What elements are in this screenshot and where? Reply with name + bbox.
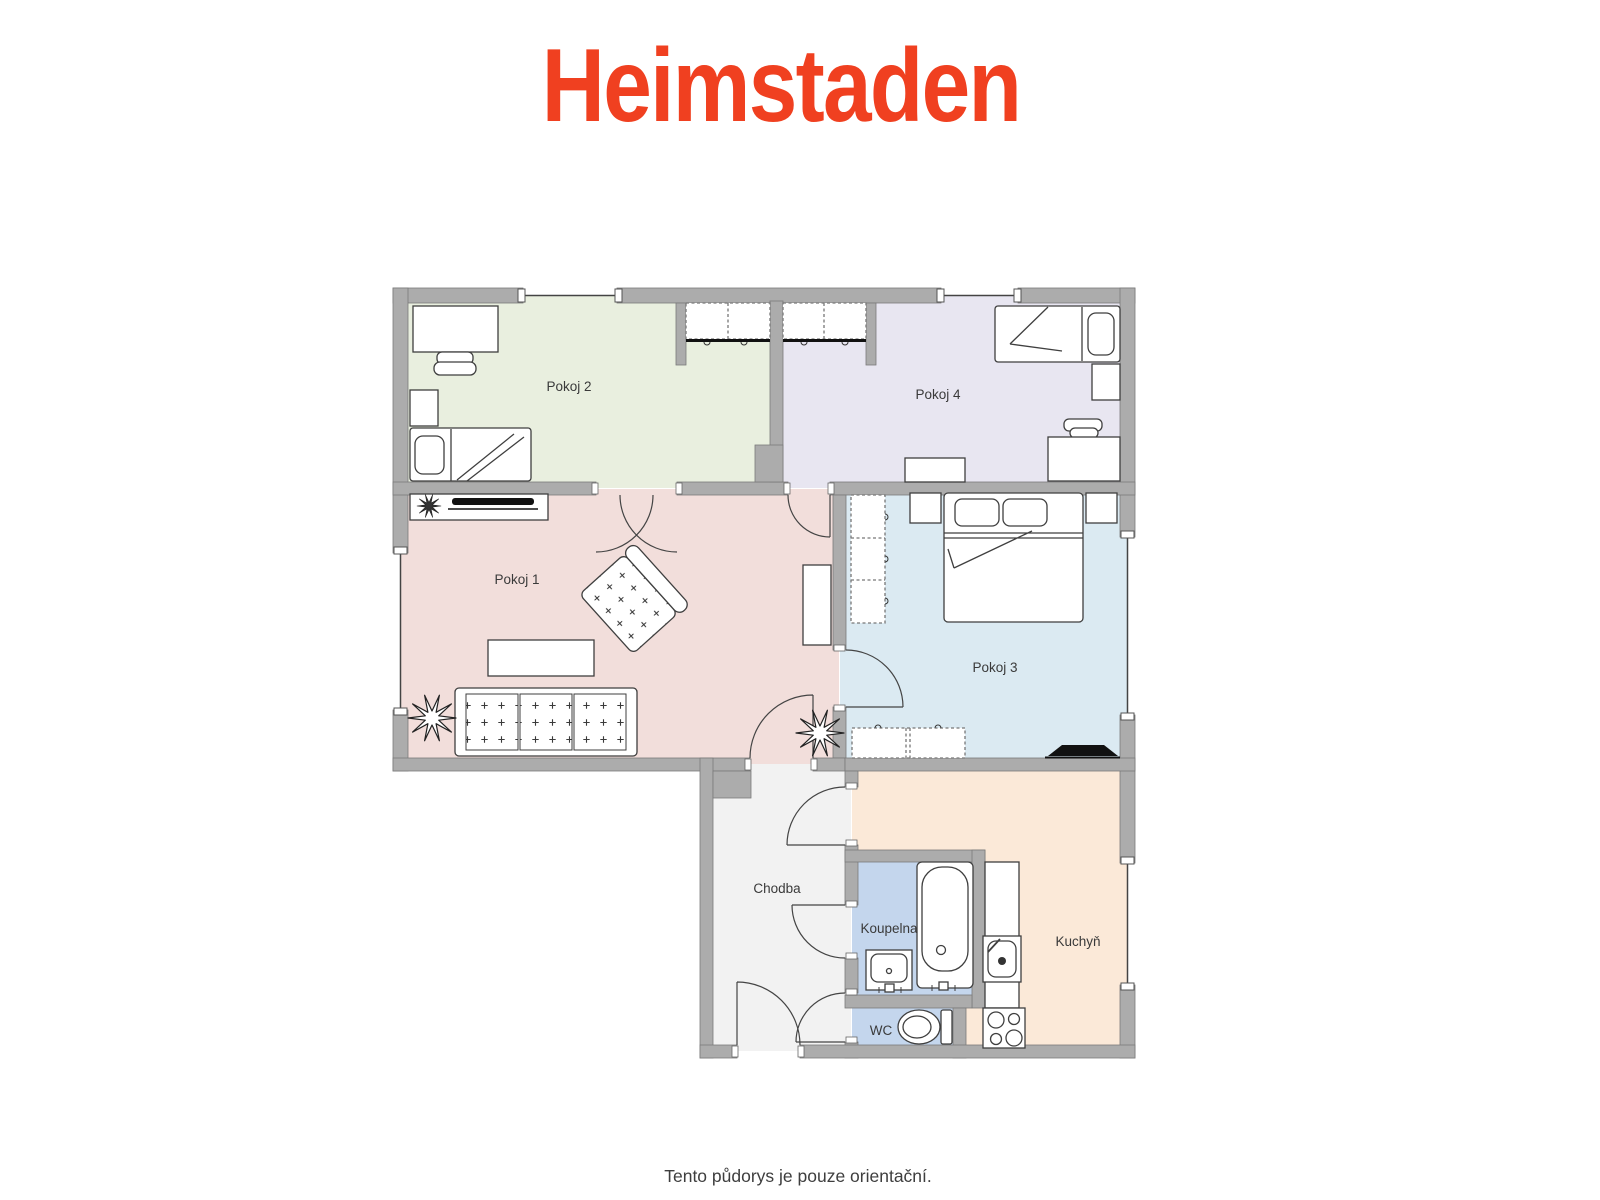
side-table-icon (905, 458, 965, 482)
room-pokoj-1-label: Pokoj 1 (494, 572, 539, 587)
room-pokoj-2-label: Pokoj 2 (546, 379, 591, 394)
room-chodba-label: Chodba (753, 881, 801, 896)
wardrobe-icon (686, 303, 770, 339)
tv-icon (452, 498, 534, 505)
nightstand-icon (410, 390, 438, 426)
desk-icon (413, 306, 498, 352)
kitchen-counter-icon (985, 862, 1019, 1008)
kitchen-sink-icon (983, 936, 1021, 982)
floorplan-disclaimer: Tento půdorys je pouze orientační. (664, 1166, 932, 1187)
desk-icon (1048, 437, 1120, 481)
coffee-table-icon (488, 640, 594, 676)
bed-icon (410, 428, 531, 481)
bed-icon (944, 493, 1083, 622)
chair-icon (434, 352, 476, 375)
room-chodba-floor (707, 764, 851, 1051)
sofa-icon (455, 688, 637, 756)
page: Heimstaden (0, 0, 1600, 1200)
room-kuchyn-label: Kuchyň (1055, 934, 1100, 949)
floorplan-drawing: Pokoj 1 Pokoj 2 Pokoj 3 Pokoj 4 Chodba K… (0, 0, 1600, 1200)
nightstand-icon (1092, 364, 1120, 400)
stove-icon (983, 1008, 1025, 1048)
room-koupelna-label: Koupelna (860, 921, 918, 936)
room-wc-label: WC (870, 1023, 893, 1038)
bathtub-icon (917, 862, 973, 991)
bed-icon (995, 306, 1120, 362)
toilet-icon (898, 1010, 952, 1044)
furniture-wc (898, 1010, 952, 1044)
furniture-kuchyn (983, 862, 1025, 1048)
cabinet-icon (803, 565, 831, 645)
dresser-icon (852, 728, 965, 758)
sink-icon (866, 950, 912, 993)
wardrobe-icon (783, 303, 866, 339)
room-pokoj-3-label: Pokoj 3 (972, 660, 1017, 675)
wardrobe-icon (851, 495, 885, 623)
room-pokoj-4-label: Pokoj 4 (915, 387, 961, 402)
nightstand-icon (910, 493, 941, 523)
nightstand-icon (1086, 493, 1117, 523)
